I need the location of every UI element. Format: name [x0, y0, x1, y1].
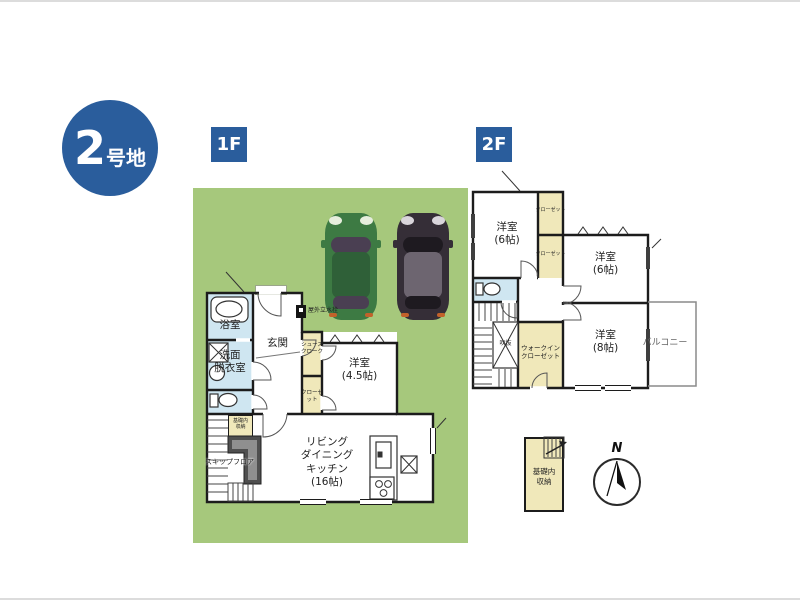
label-entrance: 玄関	[253, 337, 302, 350]
car-mirror-right	[448, 240, 453, 248]
label-annex-line1: 基礎内	[524, 467, 564, 477]
label-washroom-line1: 洗面	[207, 349, 253, 362]
car-dark	[397, 213, 449, 320]
top-border-line	[0, 0, 800, 2]
label-closet-2f-top: クローゼット	[535, 207, 566, 213]
label-foundation-storage-1f: 基礎内 収納	[228, 419, 253, 431]
compass-north-label: N	[606, 441, 628, 458]
label-balcony: バルコニー	[634, 338, 696, 350]
car-roof	[404, 252, 442, 298]
car-headlight-right	[360, 216, 373, 225]
label-kiso1f-line2: 収納	[228, 425, 253, 431]
car-headlight-right	[432, 216, 445, 225]
label-west45: 洋室 (4.5帖)	[322, 357, 397, 384]
label-west45-line2: (4.5帖)	[322, 370, 397, 383]
label-ldk-line3: キッチン	[272, 463, 382, 476]
outdoor-faucet-icon	[296, 305, 306, 318]
window-west6a-left-1	[471, 214, 475, 238]
label-skip-floor: スキップフロア	[205, 458, 275, 467]
label-annex-line2: 収納	[524, 477, 564, 487]
label-west6b: 洋室 (6帖)	[563, 251, 648, 278]
car-mirror-left	[393, 240, 398, 248]
room-bath	[207, 293, 253, 340]
label-west6a-line2: (6帖)	[476, 234, 538, 247]
car-mirror-right	[376, 240, 381, 248]
car-taillight-left	[401, 313, 409, 317]
floor-2f-label: 2F	[476, 127, 512, 162]
car-green	[325, 213, 377, 320]
label-west6b-line2: (6帖)	[563, 264, 648, 277]
label-west6b-line1: 洋室	[563, 251, 648, 264]
window-ldk-bottom-2	[360, 499, 392, 505]
window-west8-bottom-2	[605, 385, 631, 391]
room-toilet-2f	[473, 278, 518, 302]
label-closet-2f-mid: クローゼット	[535, 251, 566, 257]
floorplan-page: 2 号地 1F 2F	[0, 0, 800, 600]
lot-number: 2	[74, 125, 106, 171]
car-headlight-left	[329, 216, 342, 225]
window-west8-bottom-1	[575, 385, 601, 391]
room-toilet-1f	[207, 390, 253, 414]
window-west6a-left-2	[471, 243, 475, 260]
lot-number-suffix: 号地	[106, 142, 146, 171]
label-washroom-line2: 脱衣室	[207, 362, 253, 375]
label-wic-line2: クローゼット	[518, 352, 563, 360]
label-washroom: 洗面 脱衣室	[207, 349, 253, 376]
label-closet-1f: クローゼット	[299, 390, 325, 404]
label-west6a-line1: 洋室	[476, 221, 538, 234]
label-shoes-cloak: シューズ クローク	[300, 342, 324, 355]
label-ldk-line2: ダイニング	[272, 449, 382, 462]
label-ldk: リビング ダイニング キッチン (16帖)	[272, 436, 382, 490]
lot-number-badge: 2 号地	[62, 100, 158, 196]
floor-1f-label: 1F	[211, 127, 247, 162]
label-ldk-line1: リビング	[272, 436, 382, 449]
car-rear-glass	[405, 296, 441, 309]
label-ldk-line4: (16帖)	[272, 476, 382, 489]
entrance-porch	[255, 285, 287, 295]
label-walk-in-closet: ウォークイン クローゼット	[518, 344, 563, 361]
car-taillight-right	[365, 313, 373, 317]
label-bath: 浴室	[207, 319, 253, 332]
car-mirror-left	[321, 240, 326, 248]
label-shoes-line2: クローク	[300, 349, 324, 356]
label-outdoor-faucet: 屋外立水栓	[308, 307, 354, 315]
window-ldk-right	[430, 428, 436, 454]
car-taillight-right	[437, 313, 445, 317]
label-foundation-storage-annex: 基礎内 収納	[524, 467, 564, 487]
label-west6a: 洋室 (6帖)	[476, 221, 538, 248]
car-headlight-left	[401, 216, 414, 225]
room-closet-2f-top	[538, 192, 563, 235]
window-ldk-bottom-1	[300, 499, 326, 505]
label-shoes-line1: シューズ	[300, 342, 324, 349]
label-void: 吹抜	[493, 340, 518, 348]
car-roof	[332, 252, 370, 298]
label-west45-line1: 洋室	[322, 357, 397, 370]
